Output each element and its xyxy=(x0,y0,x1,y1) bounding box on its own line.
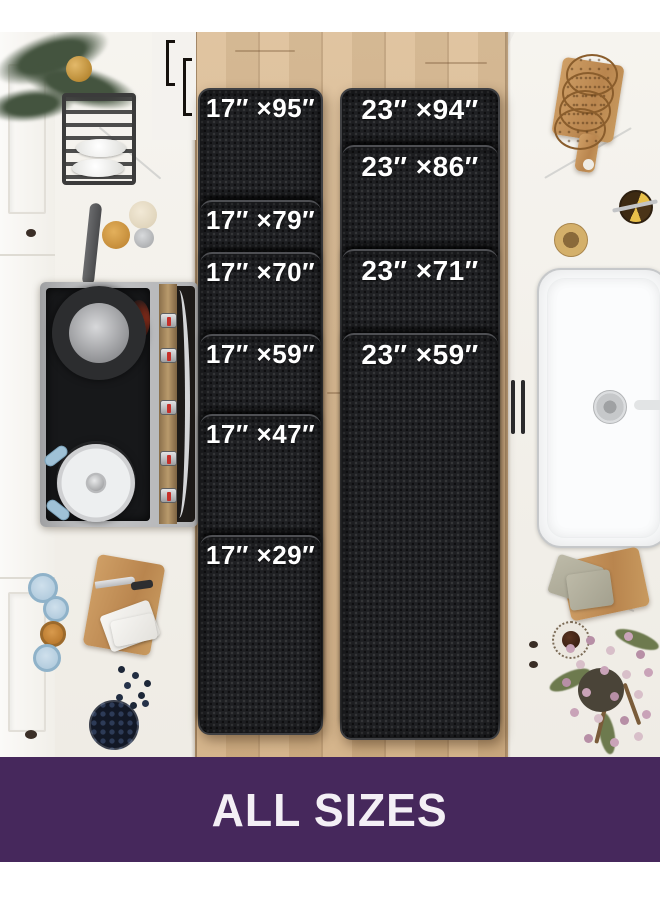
steel-bowl xyxy=(134,228,154,248)
gray-napkin xyxy=(566,569,615,611)
mat-size-label: 23″ ×94″ xyxy=(342,90,498,126)
cabinet-knob xyxy=(529,661,538,668)
spice-jar xyxy=(43,596,69,622)
oven-handle xyxy=(168,290,190,518)
stock-pot xyxy=(57,444,135,522)
door-seam xyxy=(0,254,55,256)
faucet-reflection xyxy=(634,400,660,410)
plate xyxy=(72,159,124,177)
product-image: 17″ ×95″ 17″ ×79″ 17″ ×70″ 17″ ×59″ 17″ … xyxy=(0,0,660,900)
bottom-white-band xyxy=(0,862,660,900)
plank-joint xyxy=(235,50,295,52)
kitchen-photo: 17″ ×95″ 17″ ×79″ 17″ ×70″ 17″ ×59″ 17″ … xyxy=(0,32,660,757)
cream-bowl xyxy=(129,201,157,229)
board-hole xyxy=(583,159,594,170)
flower-bouquet xyxy=(566,644,575,653)
cabinet-handle xyxy=(521,380,525,434)
mat-size-label: 17″ ×59″ xyxy=(200,336,321,370)
mat-size-label: 17″ ×70″ xyxy=(200,254,321,288)
spice-jar xyxy=(40,621,66,647)
plank-joint xyxy=(425,62,487,64)
mat-section-17x29: 17″ ×29″ xyxy=(200,535,321,733)
gold-dish xyxy=(554,223,588,257)
mat-size-label: 17″ ×29″ xyxy=(200,537,321,571)
mat-section-23x59: 23″ ×59″ xyxy=(342,333,498,738)
mat-size-label: 23″ ×59″ xyxy=(342,335,498,371)
blueberry-bowl xyxy=(89,700,139,750)
mat-size-label: 23″ ×71″ xyxy=(342,251,498,287)
door-knob xyxy=(26,229,36,237)
door-knob xyxy=(25,730,37,739)
frying-pan xyxy=(52,286,146,380)
spice-bowl xyxy=(102,221,130,249)
dish-rack xyxy=(62,93,136,185)
upper-cabinet-front xyxy=(152,32,196,140)
flower-pot xyxy=(578,668,624,712)
mat-size-label: 17″ ×95″ xyxy=(200,90,321,124)
mat-size-label: 17″ ×47″ xyxy=(200,416,321,450)
scattered-blueberries xyxy=(118,666,125,673)
spice-jar xyxy=(33,644,61,672)
cabinet-knob xyxy=(529,641,538,648)
mat-size-label: 17″ ×79″ xyxy=(200,202,321,236)
pan-steel-disc xyxy=(69,303,129,363)
all-sizes-banner: ALL SIZES xyxy=(0,757,660,862)
top-white-band xyxy=(0,0,660,32)
sink-drain xyxy=(593,390,627,424)
cabinet-edge xyxy=(166,40,175,86)
banner-title: ALL SIZES xyxy=(212,783,448,837)
bread-slice xyxy=(554,108,606,150)
cabinet-handle xyxy=(511,380,515,434)
plate xyxy=(76,139,126,157)
runner-mat-23in: 23″ ×94″ 23″ ×86″ 23″ ×71″ 23″ ×59″ xyxy=(340,88,500,740)
runner-mat-17in: 17″ ×95″ 17″ ×79″ 17″ ×70″ 17″ ×59″ 17″ … xyxy=(198,88,323,735)
gold-ornament xyxy=(66,56,92,82)
coffee-saucer xyxy=(552,621,590,659)
mat-size-label: 23″ ×86″ xyxy=(342,147,498,183)
cabinet-edge xyxy=(183,58,192,116)
pot-lid-knob xyxy=(88,475,104,491)
